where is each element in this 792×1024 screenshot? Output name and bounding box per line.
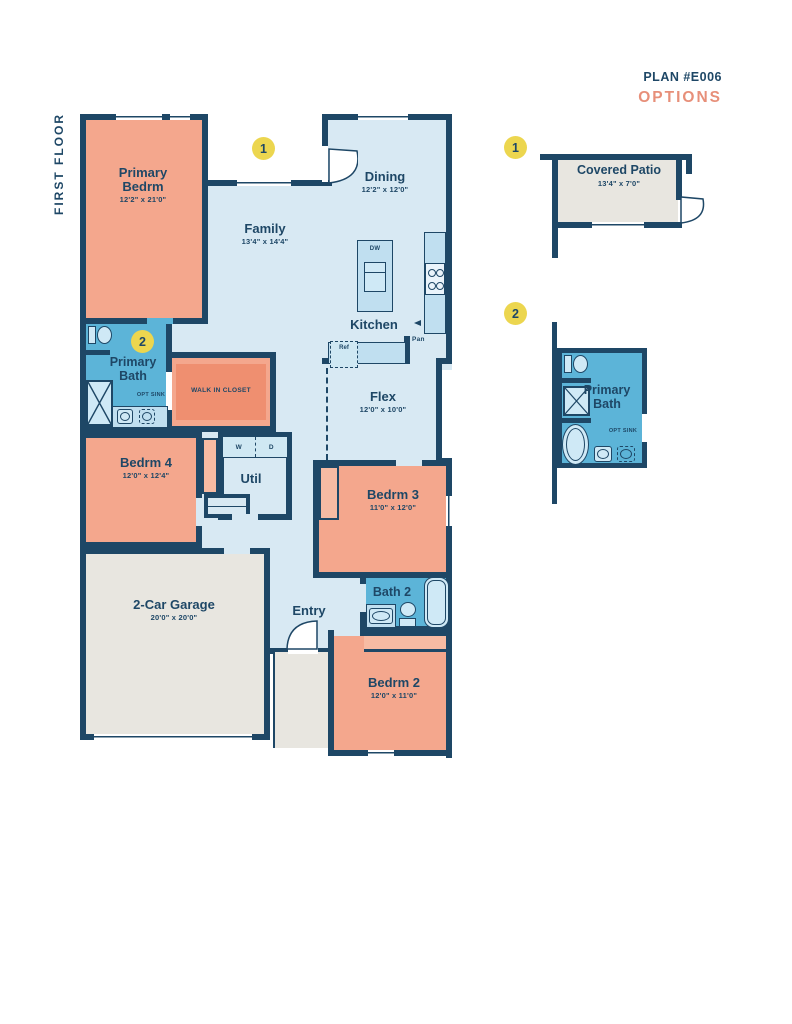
sink-basin (620, 449, 632, 459)
option-marker-2: 2 (504, 302, 527, 325)
window (170, 114, 190, 120)
toilet-bowl (573, 355, 588, 373)
wall (552, 154, 558, 258)
toilet-icon (399, 602, 416, 627)
bathtub-icon (424, 577, 449, 628)
door-gap (232, 514, 258, 520)
options-title: OPTIONS (540, 89, 722, 107)
first-floor-label: FIRST FLOOR (52, 113, 66, 215)
kitchen-arrow-icon (414, 320, 421, 326)
sink-basin (142, 412, 152, 421)
room-name: Bedrm 3 (353, 488, 433, 502)
door-gap (224, 548, 250, 554)
window (237, 180, 291, 186)
room-dims: 12'2" x 12'0" (345, 186, 425, 194)
burner-icon (428, 282, 436, 290)
optional-sink-icon (139, 409, 155, 424)
toilet-icon (564, 355, 588, 373)
label-walk-in-closet: WALK IN CLOSET (191, 387, 251, 395)
pantry-label: Pan (412, 336, 438, 344)
room-name: Primary Bath (98, 356, 168, 383)
burner-icon (428, 269, 436, 277)
label-bath2: Bath 2 (364, 586, 420, 600)
washer-dryer: W D (222, 436, 288, 458)
island-sink-icon (364, 262, 386, 292)
optional-sink-icon (617, 446, 635, 462)
garage-door (94, 734, 252, 740)
toilet-tank (88, 326, 96, 344)
toilet-bowl (400, 602, 416, 617)
label-primary-bath: Primary Bath (98, 356, 168, 383)
porch (273, 652, 329, 748)
refrigerator-icon: Ref (330, 341, 358, 368)
room-name: Flex (343, 390, 423, 404)
room-dims: 13'4" x 7'0" (576, 180, 662, 188)
room-dims: 12'0" x 11'0" (354, 692, 434, 700)
bathtub-icon (562, 424, 589, 465)
closet-shelf-line (208, 506, 246, 507)
burner-icon (436, 282, 444, 290)
label-kitchen: Kitchen (334, 318, 414, 332)
window (446, 496, 452, 526)
wall (436, 364, 442, 464)
room-name: Family (225, 222, 305, 236)
room-name: Primary Bath (572, 384, 642, 411)
room-name: Bath 2 (364, 586, 420, 600)
dryer-label: D (255, 437, 288, 457)
room-dims: 13'4" x 14'4" (225, 238, 305, 246)
hall-fill (330, 570, 362, 634)
label-covered-patio: Covered Patio 13'4" x 7'0" (576, 164, 662, 188)
sink-icon (117, 409, 133, 424)
door-gap (196, 498, 202, 526)
room-name: Entry (279, 604, 339, 618)
room-primary-bedrm (80, 114, 208, 324)
label-flex: Flex 12'0" x 10'0" (343, 390, 423, 414)
window (116, 114, 162, 120)
room-dims: 12'2" x 21'0" (108, 196, 178, 204)
marker-2: 2 (131, 330, 154, 353)
optional-wall-dashed (326, 368, 328, 460)
room-bedrm4 (80, 432, 202, 548)
door-swing (286, 620, 318, 650)
sink-basin (120, 412, 130, 421)
label-bedrm2: Bedrm 2 12'0" x 11'0" (354, 676, 434, 700)
room-name: Bedrm 2 (354, 676, 434, 690)
washer-label: W (223, 437, 255, 457)
label-dining: Dining 12'2" x 12'0" (345, 170, 425, 194)
bedrm4-closet (202, 438, 218, 494)
sink-basin (372, 611, 390, 621)
marker-1: 1 (252, 137, 275, 160)
label-util: Util (221, 472, 281, 486)
bathtub-inner (566, 428, 585, 461)
wall (540, 154, 692, 160)
door-gap (334, 630, 360, 636)
room-name: Util (221, 472, 281, 486)
room-name: Covered Patio (576, 164, 662, 178)
floor-plan-page: PLAN #E006 OPTIONS FIRST FLOOR (0, 0, 792, 1024)
toilet-tank (399, 618, 416, 627)
room-name: Primary Bedrm (108, 166, 178, 194)
sink-icon (594, 446, 612, 462)
label-primary-bedrm: Primary Bedrm 12'2" x 21'0" (108, 166, 178, 204)
island-sink-divider (365, 272, 385, 273)
sink-icon (369, 608, 393, 624)
room-dims: 12'0" x 12'4" (106, 472, 186, 480)
room-name: 2-Car Garage (122, 598, 226, 612)
plan-number: PLAN #E006 (540, 70, 722, 84)
wall (557, 418, 591, 423)
window (368, 750, 394, 756)
pantry-arrow-icon (404, 338, 410, 344)
room-dims: 20'0" x 20'0" (122, 614, 226, 622)
door-gap (642, 414, 647, 442)
toilet-bowl (97, 326, 112, 344)
label-option-primary-bath: Primary Bath (572, 384, 642, 411)
wall (80, 350, 110, 355)
opt-sink-label: OPT SINK (608, 428, 638, 435)
label-entry: Entry (279, 604, 339, 618)
wall (676, 154, 682, 200)
label-bedrm3: Bedrm 3 11'0" x 12'0" (353, 488, 433, 512)
toilet-icon (88, 326, 112, 344)
wall (686, 154, 692, 174)
room-name: Dining (345, 170, 425, 184)
room-name: Kitchen (334, 318, 414, 332)
door-swing (680, 196, 706, 224)
label-bedrm4: Bedrm 4 12'0" x 12'4" (106, 456, 186, 480)
label-family: Family 13'4" x 14'4" (225, 222, 305, 246)
stove-icon (425, 263, 445, 295)
bedrm2-closet (364, 636, 446, 652)
door-gap (396, 460, 422, 466)
room-name: Bedrm 4 (106, 456, 186, 470)
shower-icon (86, 380, 113, 426)
wall (446, 114, 452, 364)
window (358, 114, 408, 120)
sink-basin (597, 449, 609, 459)
dishwasher-label: DW (357, 246, 393, 253)
refrigerator-label: Ref (339, 345, 349, 351)
bathtub-inner (427, 580, 446, 625)
option-marker-1: 1 (504, 136, 527, 159)
toilet-tank (564, 355, 572, 373)
room-dims: 12'0" x 10'0" (343, 406, 423, 414)
label-garage: 2-Car Garage 20'0" x 20'0" (122, 598, 226, 622)
door-gap (147, 318, 173, 324)
window (592, 222, 644, 228)
burner-icon (436, 269, 444, 277)
bedrm3-closet (319, 466, 339, 520)
room-dims: 11'0" x 12'0" (353, 504, 433, 512)
opt-sink-label: OPT SINK (136, 392, 166, 399)
room-garage (80, 548, 270, 740)
